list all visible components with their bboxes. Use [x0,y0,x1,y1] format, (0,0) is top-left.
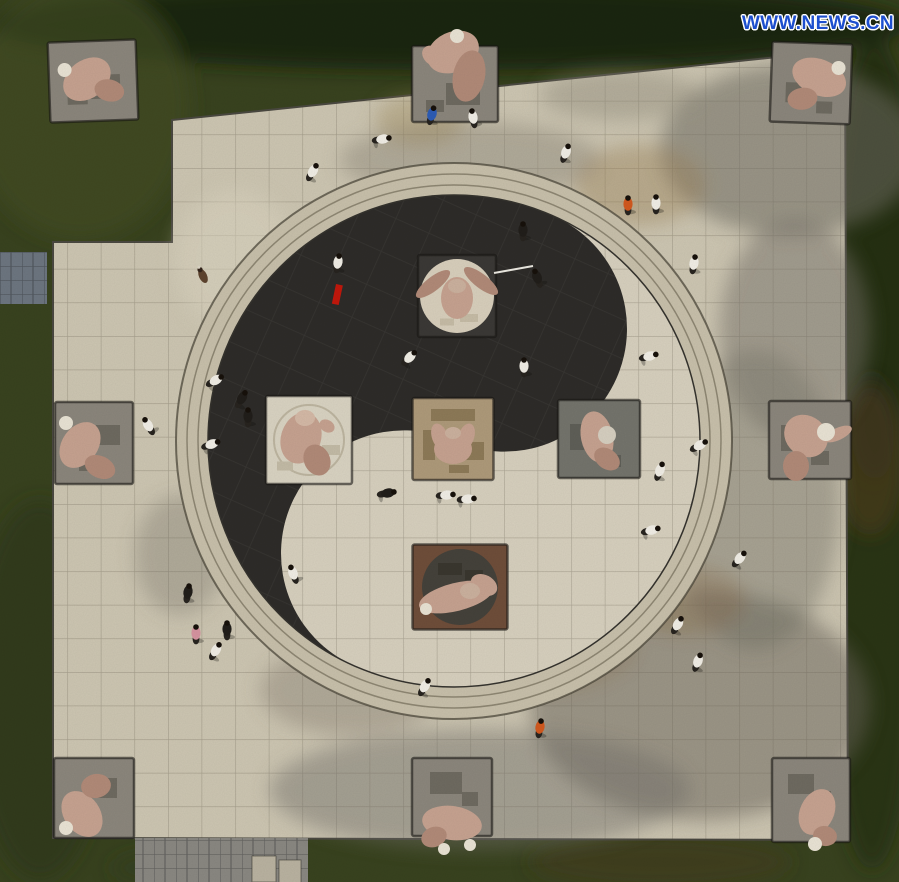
photo-grain-overlay [0,0,899,882]
news-watermark: WWW.NEWS.CN [742,13,894,35]
scene-canvas [0,0,899,882]
aerial-photo-taiji-plaza: WWW.NEWS.CN [0,0,899,882]
